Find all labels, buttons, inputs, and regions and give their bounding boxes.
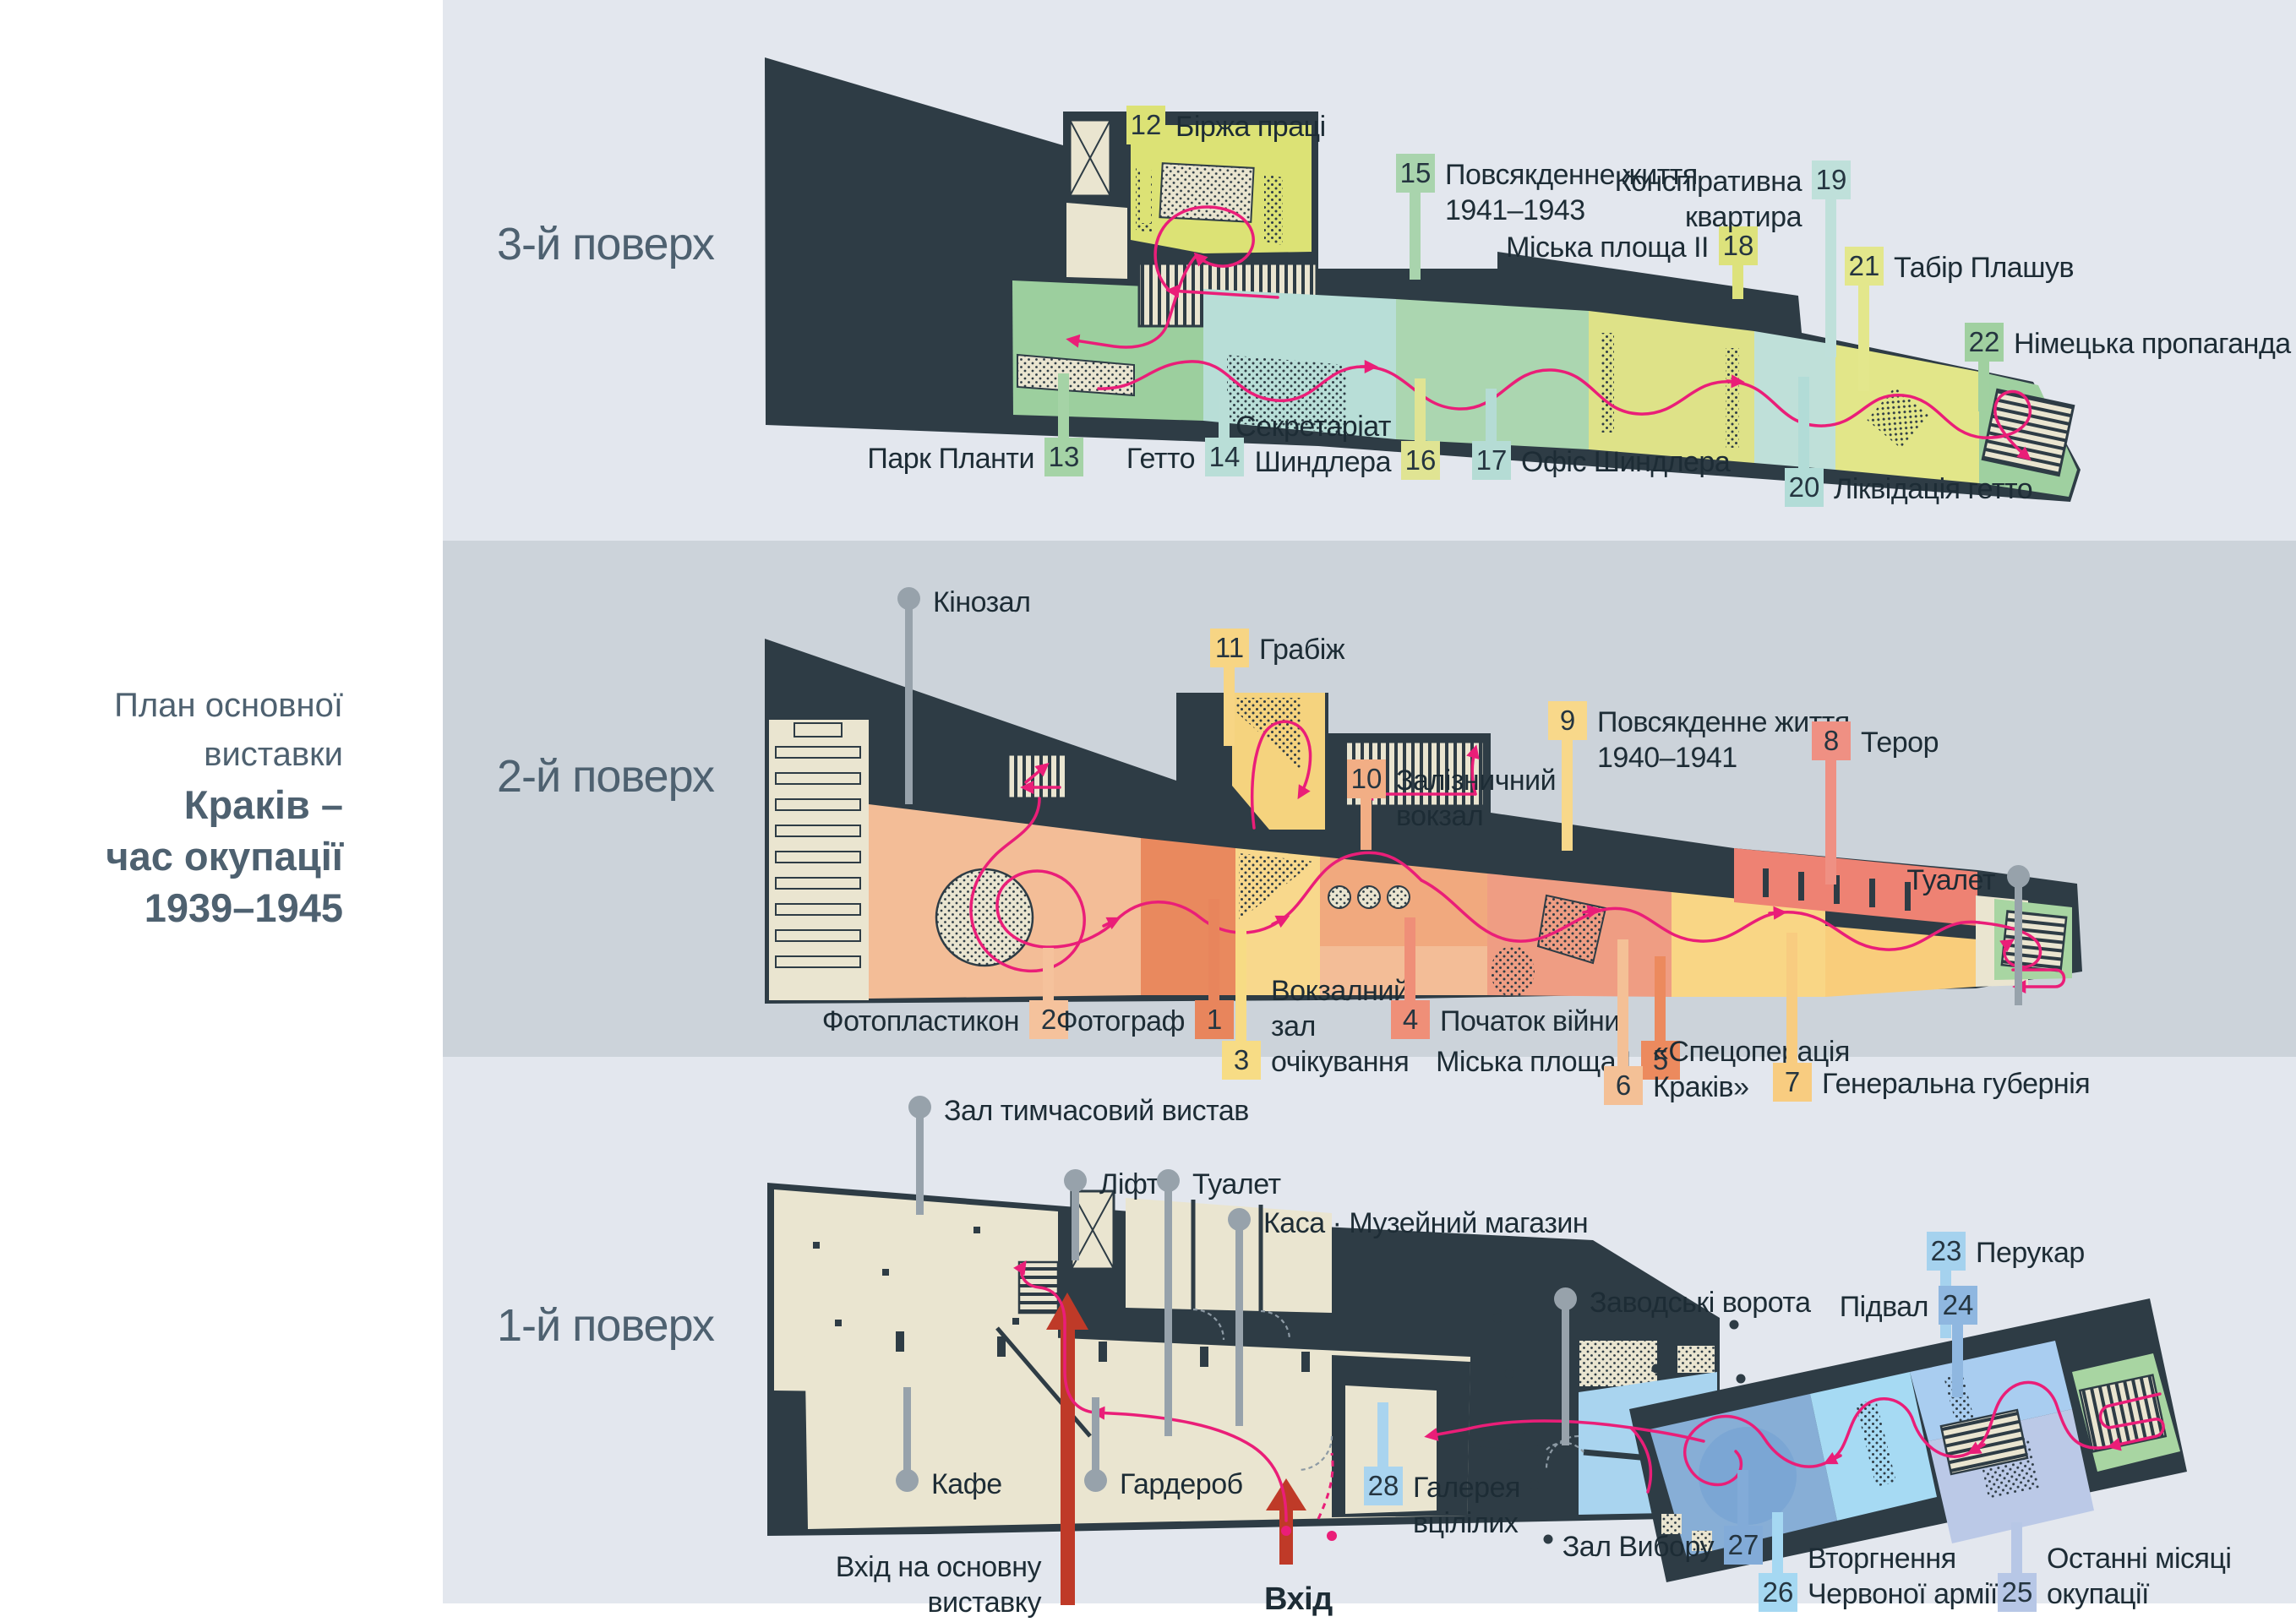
label-17-leader bbox=[1486, 389, 1497, 444]
badge-12: 12 bbox=[1126, 106, 1165, 144]
label-17-text: Офіс Шиндлера bbox=[1521, 444, 1730, 480]
pin-cinema-stem bbox=[905, 607, 913, 804]
poster-title: План основної виставки Краків – час окуп… bbox=[100, 681, 343, 933]
pin-cafe-text: Кафе bbox=[931, 1467, 1002, 1502]
label-25-text: Останні місяці окупації bbox=[2047, 1541, 2231, 1612]
label-14-leader bbox=[1219, 395, 1230, 441]
badge-25: 25 bbox=[1998, 1573, 2037, 1612]
pin-icon bbox=[1064, 1169, 1087, 1192]
pin-icon bbox=[1228, 1208, 1251, 1231]
pin-toilet1-stem bbox=[1164, 1189, 1172, 1436]
label-5-text: Міська площа I bbox=[1436, 1044, 1631, 1080]
label-12-text: Біржа праці bbox=[1175, 109, 1326, 144]
badge-24: 24 bbox=[1939, 1286, 1977, 1325]
badge-26: 26 bbox=[1759, 1573, 1797, 1612]
pin-icon bbox=[908, 1096, 931, 1119]
label-2-text: Фотопластикон bbox=[822, 1004, 1019, 1039]
pin-toilet1-text: Туалет bbox=[1192, 1167, 1281, 1202]
label-9-leader bbox=[1562, 738, 1573, 851]
label-16-leader bbox=[1415, 378, 1426, 444]
badge-20: 20 bbox=[1785, 468, 1824, 507]
label-21-text: Табір Плашув bbox=[1894, 250, 2074, 286]
label-23-text: Перукар bbox=[1976, 1235, 2085, 1271]
label-12-leader bbox=[1140, 142, 1151, 223]
badge-1: 1 bbox=[1195, 1000, 1234, 1039]
pin-toilet2-stem bbox=[2015, 884, 2022, 1005]
label-15-leader bbox=[1410, 190, 1421, 280]
pin-cinema-text: Кінозал bbox=[933, 585, 1031, 620]
label-21-leader bbox=[1858, 283, 1869, 391]
label-20-text: Ліквідація гетто bbox=[1834, 471, 2032, 507]
floor2-heading: 2-й поверх bbox=[497, 750, 714, 803]
label-22-text: Німецька пропаганда bbox=[2014, 326, 2291, 362]
label-8-text: Терор bbox=[1861, 725, 1939, 760]
label-18-text: Міська площа II bbox=[1506, 230, 1709, 265]
label-7-text: Генеральна губернія bbox=[1822, 1066, 2090, 1102]
label-4-text: Початок війни bbox=[1440, 1004, 1620, 1039]
label-25-leader bbox=[2011, 1522, 2022, 1576]
label-18-leader bbox=[1732, 264, 1743, 299]
label-4-leader bbox=[1404, 917, 1415, 1004]
pin-cafe-stem bbox=[903, 1387, 911, 1472]
label-24-text: Підвал bbox=[1840, 1289, 1928, 1325]
label-13-text: Парк Планти bbox=[867, 441, 1034, 476]
label-24-leader bbox=[1952, 1325, 1963, 1397]
label-8-leader bbox=[1825, 758, 1836, 884]
pin-wardrobe-stem bbox=[1092, 1397, 1099, 1472]
label-14-text: Гетто bbox=[1126, 441, 1195, 476]
pin-wardrobe-text: Гардероб bbox=[1120, 1467, 1243, 1502]
label-20-leader bbox=[1798, 377, 1809, 471]
floor3-heading: 3-й поверх bbox=[497, 218, 714, 270]
pin-icon bbox=[896, 1469, 919, 1492]
badge-3: 3 bbox=[1222, 1041, 1261, 1080]
main-entrance-label: Вхід на основну виставку bbox=[836, 1549, 1041, 1620]
badge-27: 27 bbox=[1724, 1526, 1763, 1565]
badge-16: 16 bbox=[1401, 441, 1440, 480]
label-26-leader bbox=[1772, 1512, 1783, 1576]
pin-icon bbox=[897, 587, 920, 610]
pin-kasa-stem bbox=[1235, 1227, 1243, 1426]
badge-28: 28 bbox=[1364, 1467, 1403, 1505]
badge-8: 8 bbox=[1812, 721, 1851, 760]
pin-temp-hall-text: Зал тимчасовий вистав bbox=[944, 1093, 1249, 1129]
badge-19: 19 bbox=[1812, 161, 1851, 199]
pin-gate-text: Заводські ворота bbox=[1590, 1285, 1810, 1320]
pin-icon bbox=[1157, 1169, 1180, 1192]
entrance-label: Вхід bbox=[1264, 1581, 1333, 1617]
badge-11: 11 bbox=[1210, 629, 1249, 667]
pin-temp-hall-stem bbox=[916, 1115, 924, 1215]
badge-7: 7 bbox=[1773, 1063, 1812, 1102]
badge-21: 21 bbox=[1845, 247, 1884, 286]
label-19-text: Конспіративна квартира bbox=[1615, 164, 1802, 235]
pin-icon bbox=[1554, 1287, 1577, 1310]
label-11-text: Грабіж bbox=[1259, 632, 1344, 667]
label-28-text: Галерея вцілілих bbox=[1413, 1470, 1520, 1541]
badge-9: 9 bbox=[1548, 701, 1587, 740]
label-10-leader bbox=[1361, 796, 1372, 850]
label-6-leader bbox=[1617, 939, 1628, 1070]
badge-4: 4 bbox=[1391, 1000, 1430, 1039]
badge-23: 23 bbox=[1927, 1232, 1966, 1271]
label-19-leader bbox=[1825, 197, 1836, 357]
label-1-leader bbox=[1208, 899, 1219, 1004]
label-26-text: Вторгнення Червоної армії bbox=[1808, 1541, 1998, 1612]
badge-13: 13 bbox=[1044, 438, 1083, 476]
pin-lift-stem bbox=[1072, 1189, 1079, 1260]
label-27-leader bbox=[1737, 1470, 1748, 1529]
label-27-text: Зал Вибору bbox=[1562, 1529, 1714, 1565]
label-28-leader bbox=[1377, 1402, 1388, 1470]
label-10-text: Залізничний вокзал bbox=[1396, 763, 1556, 834]
label-22-leader bbox=[1978, 359, 1989, 411]
badge-17: 17 bbox=[1472, 441, 1511, 480]
pin-icon bbox=[2007, 865, 2030, 888]
pin-icon bbox=[1084, 1469, 1107, 1492]
badge-22: 22 bbox=[1965, 323, 2004, 362]
label-11-leader bbox=[1224, 665, 1235, 746]
pin-gate-stem bbox=[1562, 1307, 1569, 1445]
label-1-text: Фотограф bbox=[1056, 1004, 1185, 1039]
poster-subtitle: План основної виставки bbox=[100, 681, 343, 779]
pin-kasa-text: Каса · Музейний магазин bbox=[1263, 1206, 1588, 1241]
label-2-leader bbox=[1043, 948, 1054, 1004]
label-13-leader bbox=[1058, 373, 1069, 441]
floor1-heading: 1-й поверх bbox=[497, 1299, 714, 1352]
label-16-text: Секретаріат Шиндлера bbox=[1235, 409, 1391, 480]
badge-15: 15 bbox=[1396, 154, 1435, 193]
museum-floorplan-poster: .rt{fill:none;stroke:#ea1e78;stroke-widt… bbox=[0, 0, 2296, 1622]
label-7-leader bbox=[1786, 933, 1797, 1066]
badge-6: 6 bbox=[1604, 1066, 1643, 1105]
label-5-leader bbox=[1655, 956, 1666, 1044]
label-6-text: «Спецоперація Краків» bbox=[1653, 1034, 1850, 1105]
label-3-leader bbox=[1235, 929, 1246, 1044]
pin-toilet2-text: Туалет bbox=[1906, 863, 1995, 898]
badge-10: 10 bbox=[1347, 759, 1386, 798]
pin-lift-text: Ліфт bbox=[1099, 1167, 1159, 1202]
label-3-text: Вокзалний зал очікування bbox=[1271, 973, 1409, 1080]
